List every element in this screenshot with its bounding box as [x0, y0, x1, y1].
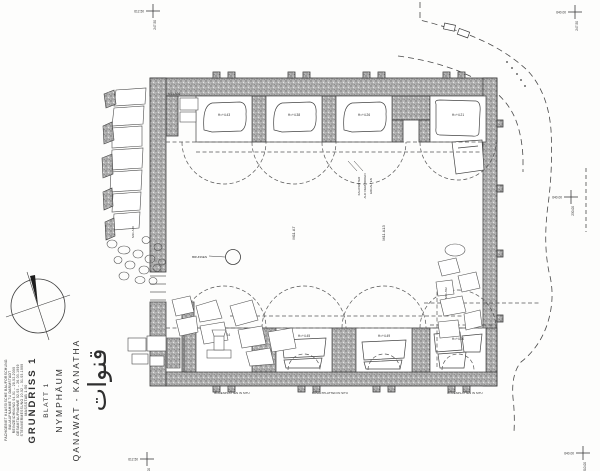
- survey-coordinate-label: 230.00: [571, 206, 575, 216]
- room-code-label: M11 A7: [291, 226, 296, 240]
- interior-annotation: KALKSINTER AUF DEM BODEN ERHALTEN: [348, 161, 373, 199]
- building-plan: H=+4.43 H=+4.38 H=+4.26 H=+4.21 H=+4.34 …: [150, 72, 540, 395]
- survey-coordinate-label: 247.50: [575, 21, 579, 31]
- survey-coordinate-label: 640.00: [552, 196, 562, 200]
- in-situ-label: BODENPLATTEN IN SITU: [214, 391, 249, 395]
- niche-elevation-label: H=+4.21: [452, 113, 464, 117]
- site-title: QANAWAT - KANATHA: [71, 339, 81, 462]
- survey-coordinate-label: 612.50: [134, 10, 144, 14]
- entrance-threshold: [150, 276, 166, 300]
- top-niches: [196, 96, 486, 174]
- survey-coordinate-label: 247.50: [153, 20, 157, 30]
- building-title: NYMPHÄUM: [54, 367, 64, 433]
- room-code-label: M11 A13: [381, 224, 386, 240]
- annotation-line: ERHALTEN: [369, 178, 373, 194]
- scale-note: MASSSTAB 1:50: [24, 384, 28, 415]
- survey-cross: 612.50 210.00: [128, 452, 154, 471]
- niche-elevation-label: H=+4.38: [288, 113, 300, 117]
- survey-coordinate-label: 210.00: [583, 462, 587, 471]
- survey-cross: 612.50 247.50: [134, 4, 160, 30]
- stone-code-label: M11 A52: [444, 287, 448, 299]
- sheet-number: BLATT 1: [43, 382, 50, 418]
- niche-elevation-label: H=+4.45: [298, 334, 310, 338]
- credit-line: GESAMTAUFNAHME 02.03 – 26.03.1999: [16, 364, 20, 435]
- boundary-dotted-marks: [506, 61, 526, 87]
- survey-coordinate-label: 640.00: [556, 11, 566, 15]
- compass-rose: [6, 272, 70, 340]
- west-ashlar-structure: [110, 88, 146, 230]
- scanned-plan-page: قنوات QANAWAT - KANATHA NYMPHÄUM BLATT 1…: [0, 0, 600, 471]
- niche-elevation-label: H=+4.49: [378, 334, 390, 338]
- stone-code-label: M11 A36: [168, 92, 181, 96]
- credit-line: STEINVERMESSUNG 10.02 – 01.03.1999: [20, 364, 24, 437]
- north-arrow-needle: [30, 275, 38, 306]
- survey-cross: 640.00 230.00: [552, 190, 578, 216]
- survey-cross: 640.00 247.50: [556, 5, 582, 31]
- drawing-title: GRUNDRISS 1: [27, 357, 38, 444]
- in-situ-label: BASALTPLATTEN IN SITU: [312, 391, 348, 395]
- credit-line: FACHGEBIET KLASSISCHE BAUFORSCHUNG: [4, 359, 8, 441]
- arabic-title: قنوات: [83, 349, 112, 412]
- niche-elevation-label: H=+4.43: [218, 113, 230, 117]
- credit-line: REINZEICHNUNG 04.01 – 28.02.2000: [12, 367, 16, 433]
- niche-elevation-label: H=+4.26: [358, 113, 370, 117]
- niche-elevation-label: H=+4.30: [452, 337, 464, 341]
- in-situ-label: BODENPLATTEN IN SITU: [447, 391, 482, 395]
- survey-coordinate-label: 640.00: [564, 452, 574, 456]
- annotation-line: AUF DEM BODEN: [363, 173, 367, 198]
- rubble-stones-southeast: [436, 244, 482, 338]
- plan-sheet-svg: قنوات QANAWAT - KANATHA NYMPHÄUM BLATT 1…: [0, 0, 600, 471]
- title-block: قنوات QANAWAT - KANATHA NYMPHÄUM BLATT 1…: [4, 339, 112, 462]
- well-feature: BRUNNEN: [192, 250, 240, 265]
- annotation-line: KALKSINTER: [357, 176, 361, 196]
- boundary-wall-blocks: [443, 23, 469, 38]
- survey-cross: 640.00 210.00: [564, 446, 590, 471]
- well-label: BRUNNEN: [192, 255, 207, 259]
- interior-corner-blocks: [180, 98, 198, 122]
- credit-line: BAUAUFNAHME TU DARMSTADT: [8, 371, 12, 430]
- survey-coordinate-label: 612.50: [128, 458, 138, 462]
- stone-code-label: M11 A40: [131, 226, 135, 238]
